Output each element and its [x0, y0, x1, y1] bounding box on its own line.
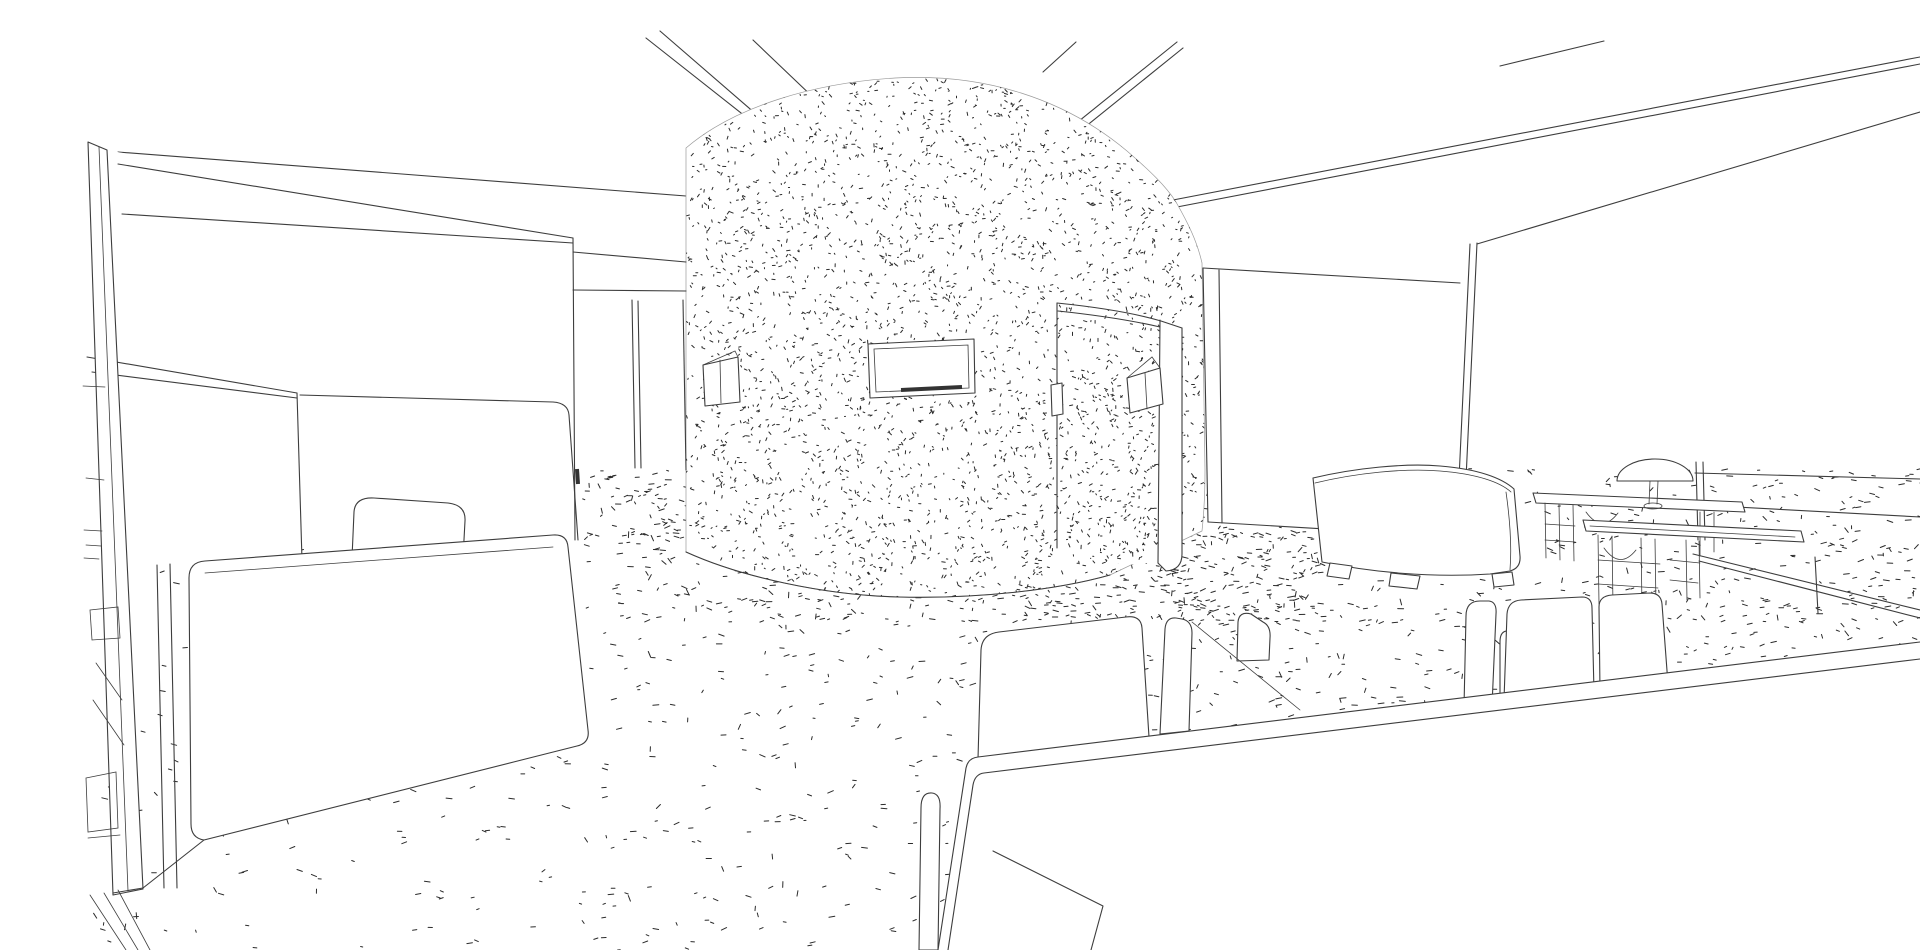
slatted-side-tables: [1533, 459, 1804, 608]
wall-art-frame: [868, 339, 975, 398]
interior-line-drawing: [0, 0, 1920, 950]
curved-screen-wall: [1051, 303, 1182, 571]
perspective-rendering-canvas: [0, 0, 1920, 950]
stipple-marks: [583, 470, 689, 546]
sofa: [1313, 465, 1520, 589]
